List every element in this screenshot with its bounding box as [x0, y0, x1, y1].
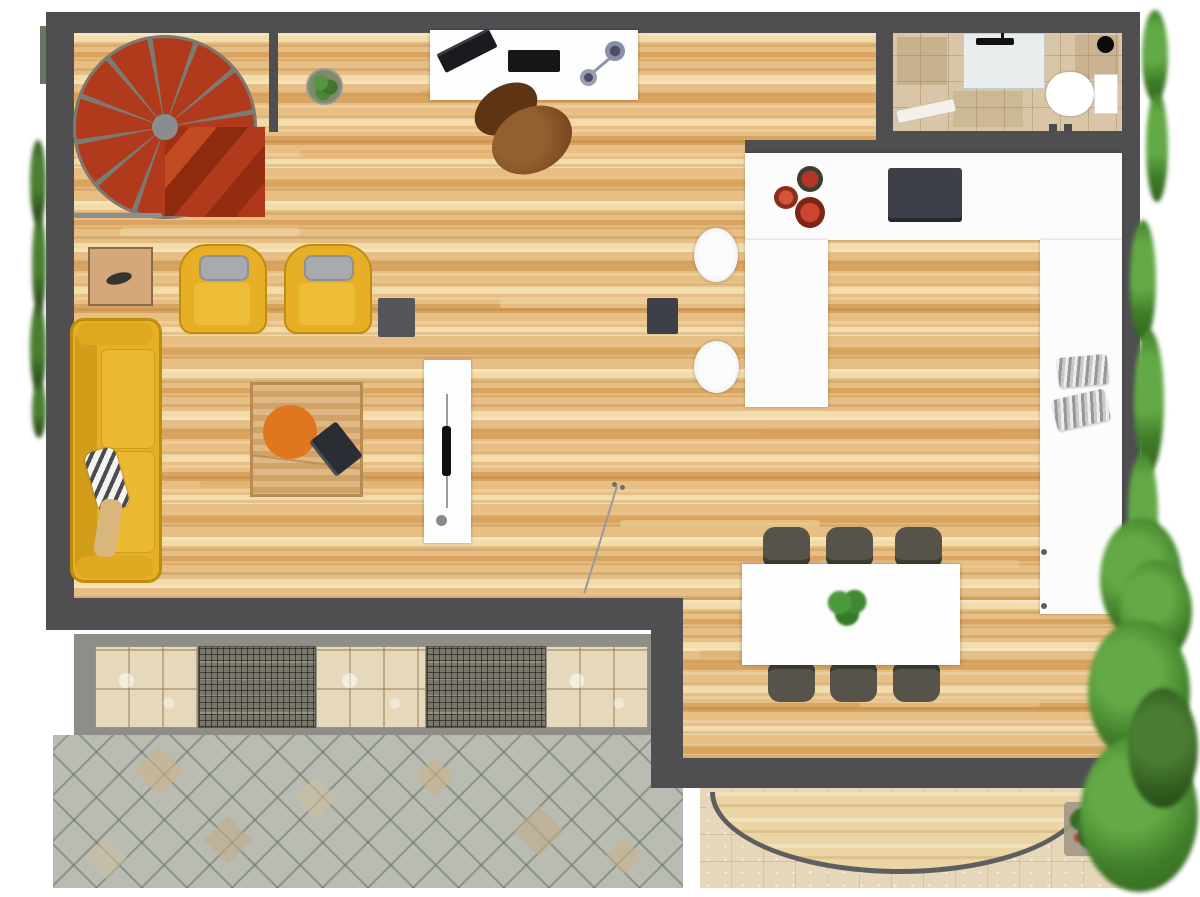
dining-chair [826, 527, 873, 567]
side-cube [378, 298, 415, 337]
hedge-left [32, 214, 46, 314]
tree-bottom-right [1128, 688, 1198, 808]
paving-accent [606, 838, 643, 875]
vanity-sink [963, 33, 1045, 89]
bathroom-tile-shade [897, 37, 947, 85]
cabinet-handle [1041, 549, 1047, 555]
paving-accent [85, 837, 127, 879]
sofa-armrest-bottom [77, 556, 153, 578]
seat-cushion [194, 283, 250, 325]
bar-stool [694, 228, 738, 282]
desk-lamp-head [605, 41, 625, 61]
floor-lamp-head [612, 482, 617, 487]
cabinet-handle [1041, 603, 1047, 609]
wall-patio-connector [651, 598, 683, 788]
hedge-right-middle [1134, 330, 1164, 472]
plate-stack [795, 197, 825, 228]
sofa [70, 318, 162, 583]
toilet-tank [1094, 74, 1118, 114]
plate-stack [774, 186, 798, 209]
paving-accent [295, 777, 337, 819]
dining-chair [895, 527, 942, 567]
dining-chair [893, 662, 940, 702]
dining-chair [763, 527, 810, 567]
toilet [1046, 72, 1094, 116]
hedge-left [32, 382, 46, 438]
headrest-cushion [304, 255, 354, 281]
paving-accent [514, 806, 565, 857]
tv-sideboard [424, 360, 471, 543]
desk-lamp-base [580, 69, 597, 86]
edge-notch [40, 26, 47, 84]
bar-stool [694, 341, 739, 393]
marble-tile [316, 646, 426, 728]
hedge-left [30, 140, 46, 224]
speaker-cube [647, 298, 678, 334]
lounge-chair [284, 244, 372, 334]
seat-cushion [299, 283, 355, 325]
hedge-left [30, 304, 46, 392]
staircase-landing-overlap [165, 127, 264, 216]
round-orange-rug [263, 405, 317, 459]
grate-tile [198, 646, 316, 728]
office-chair [468, 86, 574, 176]
wall-kitchen-edge [745, 140, 1122, 153]
cooktop [888, 168, 962, 222]
marble-tile [95, 646, 198, 728]
media-knob [436, 515, 447, 526]
sofa-seat-cushion [101, 349, 155, 449]
plate-stack [797, 166, 823, 192]
metal-canister [1057, 354, 1109, 388]
coffee-table [250, 382, 363, 497]
faucet [976, 38, 1014, 45]
dining-chair [830, 662, 877, 702]
ceiling-spot [1097, 36, 1114, 53]
paving-accent [204, 816, 252, 864]
floor-lamp-head [620, 485, 625, 490]
keyboard [508, 50, 560, 72]
centerpiece-plant [822, 585, 872, 629]
wall-living-bottom [46, 598, 683, 630]
grate-tile [426, 646, 546, 728]
headrest-cushion [199, 255, 249, 281]
marble-tile [546, 646, 648, 728]
side-table [88, 247, 153, 306]
hedge-right-middle [1130, 220, 1156, 342]
paving-accent [134, 746, 185, 797]
kitchen-counter-left-arm [745, 240, 828, 407]
wall-dining-bottom [683, 758, 1122, 788]
potted-plant [306, 68, 343, 105]
wall-stair-partition [269, 33, 278, 132]
paving-accent [415, 757, 455, 797]
staircase-hub [152, 114, 178, 140]
dining-chair [768, 662, 815, 702]
floor-plan-canvas [0, 0, 1200, 897]
tv [442, 426, 451, 476]
stair-railing [74, 213, 162, 218]
hedge-right-top [1142, 10, 1168, 102]
bathroom-tile-shade [953, 91, 1023, 127]
ashtray [105, 270, 133, 287]
hedge-right-top [1146, 92, 1168, 202]
sofa-armrest-top [77, 323, 153, 345]
patio-diamond-paving [53, 735, 683, 888]
lounge-chair [179, 244, 267, 334]
